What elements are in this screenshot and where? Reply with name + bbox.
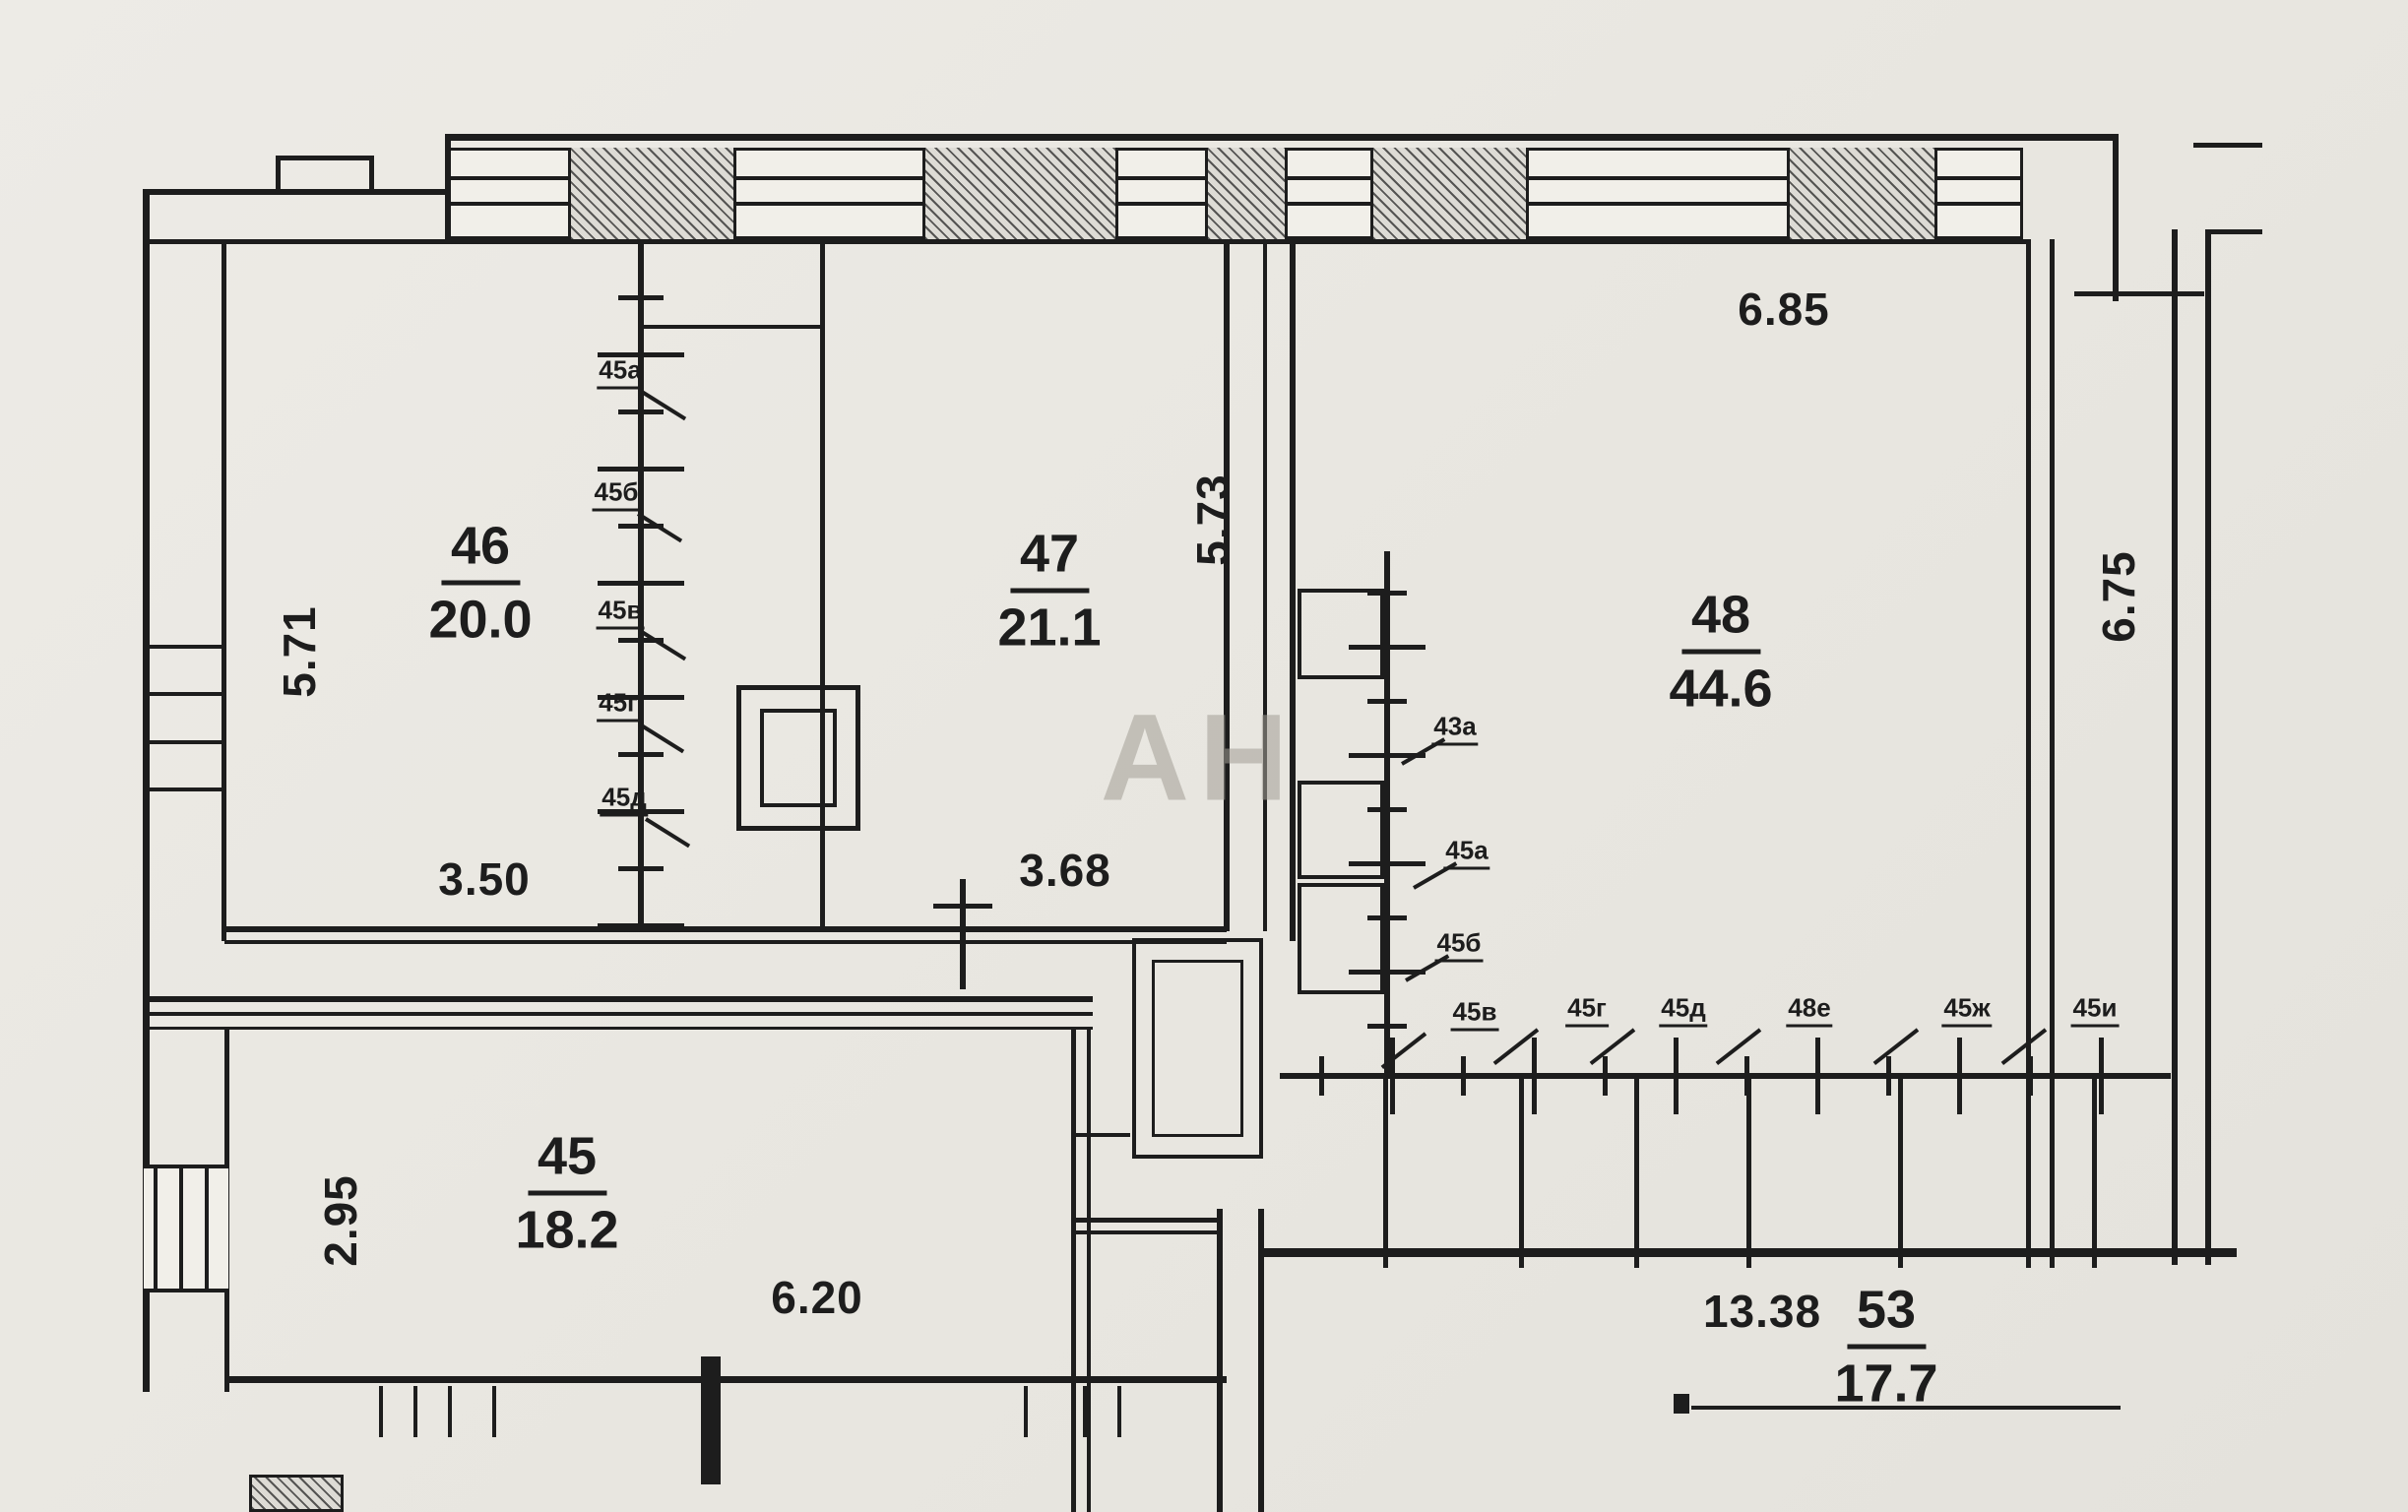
window-pane bbox=[205, 1168, 209, 1289]
door-stub bbox=[701, 1356, 721, 1484]
wall bbox=[1071, 1027, 1076, 1512]
wall bbox=[143, 189, 150, 998]
wall bbox=[224, 1376, 1227, 1383]
room-label-45: 45 18.2 bbox=[515, 1126, 618, 1261]
wall bbox=[2205, 229, 2211, 1265]
wall-tick bbox=[598, 809, 684, 814]
window-rung bbox=[148, 692, 222, 696]
wall-tick bbox=[1390, 1038, 1395, 1114]
wall-tick bbox=[618, 638, 664, 643]
window-tick bbox=[492, 1386, 496, 1437]
tag-leader bbox=[1873, 1028, 1920, 1065]
wall bbox=[448, 134, 2119, 141]
wall bbox=[1087, 1027, 1091, 1512]
wall-pier bbox=[571, 148, 733, 239]
dimension-left-46: 5.71 bbox=[273, 605, 326, 698]
wall bbox=[1073, 1230, 1223, 1234]
window-tick bbox=[413, 1386, 417, 1437]
wall-tick bbox=[2099, 1038, 2104, 1114]
shaft-box bbox=[1298, 589, 1384, 679]
wall bbox=[1073, 1218, 1223, 1223]
wall-tag: 45ж bbox=[1941, 993, 1992, 1028]
window bbox=[733, 148, 925, 239]
wall bbox=[224, 940, 1227, 944]
wall bbox=[2113, 134, 2119, 301]
wall bbox=[2205, 229, 2262, 234]
wall bbox=[644, 325, 821, 329]
wall-tick bbox=[1319, 1056, 1324, 1096]
wall-tick bbox=[1461, 1056, 1466, 1096]
window-pane bbox=[736, 202, 922, 206]
partition-wall bbox=[638, 242, 644, 931]
wall bbox=[1073, 1133, 1130, 1137]
room-area: 20.0 bbox=[428, 586, 532, 651]
wall-tick bbox=[1349, 861, 1426, 866]
wall-tick bbox=[1349, 645, 1426, 650]
wall-stub bbox=[2092, 1073, 2097, 1268]
wall bbox=[143, 239, 2030, 244]
window bbox=[1115, 148, 1208, 239]
room-number: 48 bbox=[1681, 585, 1760, 655]
wall-tick bbox=[1886, 1056, 1891, 1096]
wall-tick bbox=[1532, 1038, 1537, 1114]
room-number: 53 bbox=[1847, 1280, 1926, 1350]
wall-tick bbox=[1367, 1024, 1407, 1029]
room-number: 46 bbox=[441, 516, 520, 586]
tag-leader bbox=[1401, 737, 1445, 765]
window-tick bbox=[448, 1386, 452, 1437]
wall-stub bbox=[1746, 1073, 1751, 1268]
tag-leader bbox=[645, 817, 690, 848]
wall-tag: 45г bbox=[597, 688, 640, 723]
room-area: 17.7 bbox=[1834, 1350, 1937, 1415]
wall-tick bbox=[598, 923, 684, 928]
wall bbox=[2172, 229, 2178, 1265]
wall-tick bbox=[1674, 1038, 1679, 1114]
dimension-left-45: 2.95 bbox=[314, 1174, 367, 1267]
window-pane bbox=[179, 1168, 183, 1289]
wall bbox=[1262, 1248, 2237, 1257]
wall-tick bbox=[598, 581, 684, 586]
window-tick bbox=[1024, 1386, 1028, 1437]
window-tick bbox=[379, 1386, 383, 1437]
wall-tag: 45г bbox=[1565, 993, 1609, 1028]
tag-leader bbox=[641, 390, 686, 420]
window-pane bbox=[1288, 202, 1370, 206]
room-label-47: 47 21.1 bbox=[997, 524, 1101, 659]
wall-tick bbox=[1367, 591, 1407, 596]
wall bbox=[148, 1012, 1093, 1016]
floor-plan: 46 20.0 47 21.1 48 44.6 45 18.2 53 17.7 … bbox=[0, 0, 2408, 1512]
wall bbox=[148, 996, 1093, 1002]
wall-tick bbox=[1349, 970, 1426, 975]
tag-leader bbox=[1716, 1028, 1762, 1065]
wall bbox=[222, 242, 226, 941]
window bbox=[448, 148, 571, 239]
wall-tick bbox=[598, 695, 684, 700]
dimension-bottom-45: 6.20 bbox=[771, 1271, 863, 1324]
window bbox=[1934, 148, 2023, 239]
window-rung bbox=[148, 787, 222, 791]
room-area: 18.2 bbox=[515, 1196, 618, 1261]
wall-tick bbox=[1957, 1038, 1962, 1114]
shaft-box bbox=[760, 709, 837, 807]
wall bbox=[1290, 242, 1296, 941]
wall-tick bbox=[1367, 915, 1407, 920]
window bbox=[1526, 148, 1790, 239]
window-rung bbox=[148, 740, 222, 744]
window-pane bbox=[736, 176, 922, 180]
wall-tick bbox=[598, 467, 684, 472]
wall-tick bbox=[1603, 1056, 1608, 1096]
room-label-46: 46 20.0 bbox=[428, 516, 532, 651]
wall-stub bbox=[1898, 1073, 1903, 1268]
window-pane bbox=[1529, 176, 1787, 180]
wall-pilaster bbox=[276, 156, 374, 195]
wall bbox=[1258, 1209, 1264, 1512]
wall-pier bbox=[1790, 148, 1934, 239]
wall-tick bbox=[2028, 1056, 2033, 1096]
wall bbox=[1217, 1209, 1223, 1512]
wall-tick bbox=[618, 866, 664, 871]
shaft-box bbox=[1298, 883, 1384, 994]
wall-tick bbox=[1349, 753, 1426, 758]
window bbox=[1285, 148, 1373, 239]
wall bbox=[148, 1027, 1093, 1030]
dimension-right-47: 5.73 bbox=[1186, 473, 1239, 566]
tag-leader bbox=[1590, 1028, 1636, 1065]
wall-tag: 45а bbox=[597, 355, 643, 390]
window-pane bbox=[154, 1168, 158, 1289]
room-area: 21.1 bbox=[997, 594, 1101, 659]
wall bbox=[2026, 239, 2031, 1268]
dimension-bottom-47: 3.68 bbox=[1019, 844, 1111, 897]
window-tick bbox=[1117, 1386, 1121, 1437]
wall bbox=[2193, 143, 2262, 148]
wall-tag: 45д bbox=[1659, 993, 1707, 1028]
wall-stub bbox=[1634, 1073, 1639, 1268]
wall-pier bbox=[1208, 148, 1285, 239]
wall-stub bbox=[1519, 1073, 1524, 1268]
partition-wall bbox=[1384, 551, 1390, 1078]
agency-watermark: АН bbox=[1101, 688, 1299, 829]
shaft-room-inner bbox=[1152, 960, 1243, 1137]
wall-tag: 45в bbox=[1451, 997, 1499, 1032]
window-tick bbox=[1083, 1386, 1087, 1437]
partition-wall bbox=[1280, 1073, 2171, 1079]
tag-leader bbox=[1405, 954, 1449, 981]
wall-tick bbox=[618, 524, 664, 529]
wall-stub bbox=[1383, 1073, 1388, 1268]
wall-tick bbox=[618, 409, 664, 414]
window-pane bbox=[1118, 202, 1205, 206]
wall-tick bbox=[598, 352, 684, 357]
room-label-48: 48 44.6 bbox=[1669, 585, 1772, 720]
wall-tick bbox=[1367, 807, 1407, 812]
door-tick bbox=[933, 904, 992, 909]
wall-tick bbox=[618, 295, 664, 300]
dimension-top-48: 6.85 bbox=[1738, 283, 1830, 336]
window-pane bbox=[1529, 202, 1787, 206]
dimension-right-48: 6.75 bbox=[2092, 550, 2145, 643]
window-cap bbox=[144, 1289, 228, 1292]
wall-tag: 45в bbox=[597, 596, 645, 630]
wall bbox=[2050, 239, 2055, 1268]
window-pane bbox=[1937, 202, 2020, 206]
room-number: 45 bbox=[528, 1126, 606, 1196]
wall bbox=[224, 926, 1227, 932]
dimension-bottom-53: 13.38 bbox=[1703, 1285, 1821, 1338]
window-pane bbox=[1288, 176, 1370, 180]
room-area: 44.6 bbox=[1669, 655, 1772, 720]
tag-leader bbox=[641, 630, 686, 661]
wall-stub bbox=[249, 1475, 344, 1512]
wall-tick bbox=[1367, 699, 1407, 704]
wall-tag: 48е bbox=[1786, 993, 1832, 1028]
room-number: 47 bbox=[1010, 524, 1089, 594]
tag-leader bbox=[2001, 1028, 2048, 1065]
wall-tag: 45и bbox=[2071, 993, 2120, 1028]
window-pane bbox=[451, 202, 568, 206]
room-label-53: 53 17.7 bbox=[1834, 1280, 1937, 1415]
wall-tick bbox=[618, 752, 664, 757]
wall-pier bbox=[925, 148, 1115, 239]
wall bbox=[1674, 1394, 1689, 1414]
wall bbox=[2074, 291, 2204, 296]
tag-leader bbox=[639, 723, 684, 753]
wall-tick bbox=[1744, 1056, 1749, 1096]
dimension-bottom-46: 3.50 bbox=[438, 852, 531, 906]
window-rung bbox=[148, 645, 222, 649]
door-tick bbox=[960, 879, 966, 989]
window-pane bbox=[1118, 176, 1205, 180]
wall-pier bbox=[1373, 148, 1526, 239]
wall-tick bbox=[1815, 1038, 1820, 1114]
wall-tag: 45б bbox=[593, 477, 641, 512]
window-pane bbox=[1937, 176, 2020, 180]
window-pane bbox=[451, 176, 568, 180]
